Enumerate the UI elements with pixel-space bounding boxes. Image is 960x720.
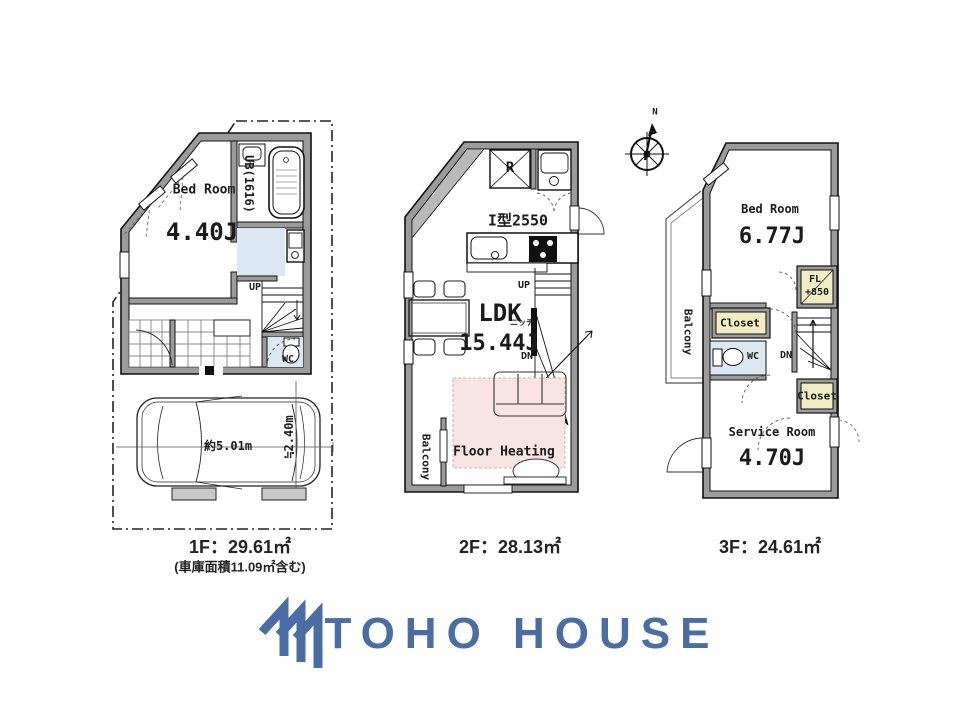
washing-machine-icon (287, 230, 304, 262)
balcony-window (440, 430, 447, 462)
f3-closet-upper-label: Closet (720, 318, 760, 329)
f3-bedroom-name: Bed Room (741, 203, 799, 215)
f3-fl-line1: FL (809, 275, 821, 285)
f3-bedroom-size: 6.77J (739, 226, 805, 248)
f3-area-label: 3F：24.61㎡ (719, 538, 821, 556)
f1-car-length: 約5.01m (204, 440, 252, 452)
logo-wordmark: TOHO HOUSE (324, 612, 719, 656)
f1-bath-label: UB(1616) (243, 155, 255, 213)
service-door (702, 438, 711, 468)
toilet-icon (713, 349, 743, 367)
f3-fl-line2: +850 (805, 288, 829, 298)
f2-fridge-label: R (506, 161, 514, 175)
washroom-floor (237, 228, 285, 276)
f2-floor-heating-label: Floor Heating (453, 446, 555, 459)
f2-area-label: 2F：28.13㎡ (459, 538, 561, 556)
f3-service-name: Service Room (729, 426, 816, 438)
compass-north-label: N (652, 109, 657, 118)
floor1-plan (100, 100, 350, 580)
service-window (830, 417, 839, 447)
f3-stairs-down-label: DN (780, 351, 792, 361)
floorplan-canvas: TOHO HOUSE Bed Room 4.40J UB(1616) UP WC… (0, 0, 960, 720)
f1-area-label: 1F：29.61㎡ (189, 538, 291, 556)
f1-car-width: ≒2.40m (283, 415, 295, 458)
f3-service-size: 4.70J (739, 448, 805, 470)
entry-door-arc (579, 208, 604, 234)
compass-icon (612, 103, 688, 187)
service-window-arc (839, 420, 859, 442)
bottom-window (464, 485, 512, 493)
f1-wc-label: WC (282, 355, 294, 365)
balcony-door (702, 270, 711, 296)
wheel-stop (172, 488, 216, 500)
f2-balcony-label: Balcony (421, 434, 432, 480)
vanity-icon (538, 150, 571, 190)
f3-balcony-label: Balcony (683, 309, 694, 355)
f2-niche-label: ニッチ (510, 319, 534, 327)
service-door-arc (667, 438, 703, 472)
f2-kitchen-type: I型2550 (488, 214, 548, 229)
f1-bedroom-size: 4.40J (166, 220, 238, 244)
f1-stairs-up-label: UP (249, 283, 261, 293)
stove-icon (529, 236, 557, 262)
f3-wc-label: WC (747, 352, 759, 362)
left-window (120, 252, 129, 278)
entrance-tiles (129, 320, 250, 367)
f1-bedroom-name: Bed Room (173, 184, 236, 197)
wheel-stop (262, 488, 306, 500)
f3-closet-lower-label: Closet (797, 391, 837, 402)
f1-area-note: (車庫面積11.09㎡含む) (174, 561, 305, 574)
bathtub-icon (269, 147, 304, 218)
entry-door-frame (570, 206, 579, 230)
f2-stairs-down-label: DN (521, 352, 533, 362)
f2-stairs-up-label: UP (518, 281, 530, 291)
bedroom-window (830, 196, 839, 230)
